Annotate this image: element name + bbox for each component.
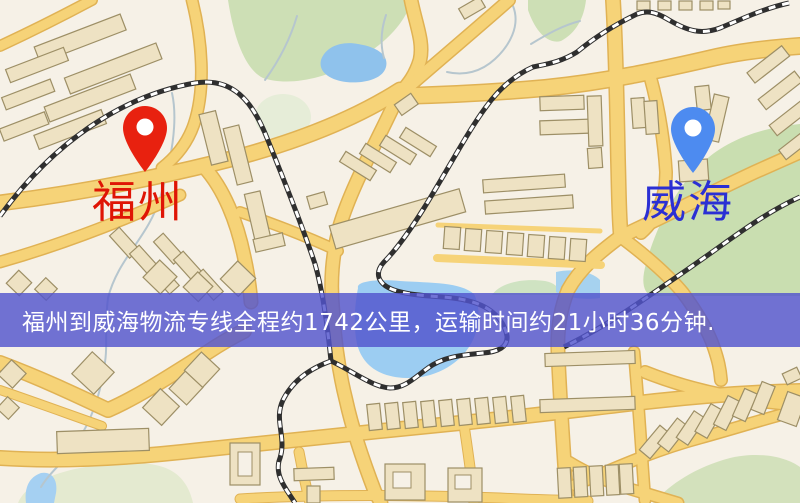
origin-pin-icon	[122, 105, 168, 173]
pin-shape	[123, 106, 167, 172]
destination-city-label: 威海	[642, 181, 734, 225]
route-info-text: 福州到威海物流专线全程约1742公里，运输时间约21小时36分钟.	[22, 303, 715, 337]
map-graphic	[0, 0, 800, 503]
map-container: 福州 威海 福州到威海物流专线全程约1742公里，运输时间约21小时36分钟.	[0, 0, 800, 503]
pin-shape	[671, 107, 715, 173]
destination-pin-icon	[670, 106, 716, 174]
origin-city-label: 福州	[92, 181, 184, 225]
route-info-banner: 福州到威海物流专线全程约1742公里，运输时间约21小时36分钟.	[0, 293, 800, 347]
